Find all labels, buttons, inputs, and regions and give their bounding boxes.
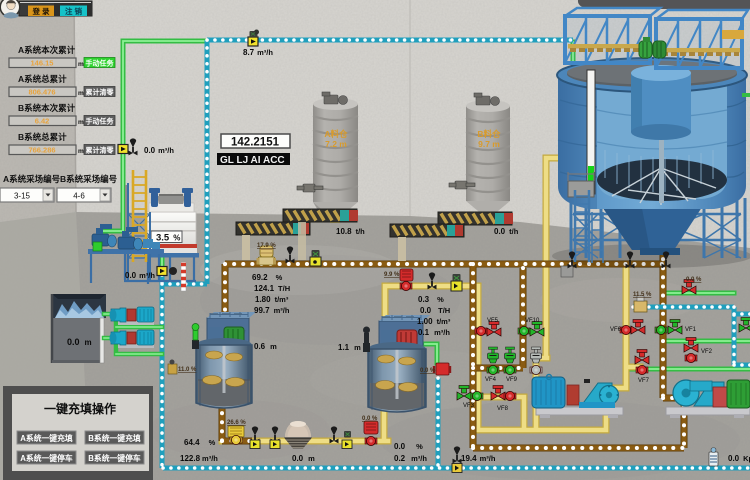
svg-text:A系统一键停车: A系统一键停车: [20, 453, 73, 463]
svg-text:累计清零: 累计清零: [86, 146, 115, 155]
svg-text:VF7: VF7: [638, 378, 650, 384]
svg-text:122.8m³/h: 122.8m³/h: [180, 454, 218, 463]
svg-text:VF1: VF1: [685, 327, 697, 333]
svg-text:4-6: 4-6: [73, 192, 85, 201]
svg-text:VF5: VF5: [487, 318, 499, 324]
svg-text:B系统本次累计: B系统本次累计: [18, 103, 76, 113]
svg-text:VF9: VF9: [506, 377, 518, 383]
svg-text:0.1m³/h: 0.1m³/h: [418, 328, 450, 337]
svg-text:B系统采场编号: B系统采场编号: [60, 174, 118, 184]
svg-text:A系统本次累计: A系统本次累计: [18, 45, 76, 55]
svg-text:B系统一键充填: B系统一键充填: [88, 433, 141, 443]
svg-text:VF8: VF8: [497, 406, 509, 412]
svg-text:0.0m³/h: 0.0m³/h: [125, 271, 155, 280]
svg-text:766.286: 766.286: [28, 146, 55, 155]
svg-text:0.0m³/h: 0.0m³/h: [144, 146, 174, 155]
svg-text:A系统总累计: A系统总累计: [18, 74, 67, 84]
svg-text:806.476: 806.476: [28, 88, 55, 97]
svg-text:9.9 %: 9.9 %: [384, 272, 400, 278]
svg-text:累计清零: 累计清零: [86, 88, 115, 97]
svg-text:A系统一键充填: A系统一键充填: [20, 433, 73, 443]
svg-text:手动任务: 手动任务: [86, 117, 115, 126]
svg-text:0.0Kp: 0.0Kp: [728, 454, 750, 463]
svg-text:VF2: VF2: [701, 349, 713, 355]
svg-text:A料仓: A料仓: [324, 129, 348, 139]
svg-text:0.0m: 0.0m: [67, 337, 92, 347]
svg-text:0.2m³/h: 0.2m³/h: [394, 454, 427, 463]
svg-text:B料仓: B料仓: [477, 129, 501, 139]
svg-text:17.9 %: 17.9 %: [257, 243, 276, 249]
svg-text:11.0 %: 11.0 %: [178, 367, 197, 373]
svg-text:登 录: 登 录: [31, 6, 50, 16]
svg-text:7.2 m: 7.2 m: [325, 139, 347, 149]
svg-text:B系统一键停车: B系统一键停车: [88, 453, 141, 463]
svg-text:146.15: 146.15: [31, 59, 54, 68]
svg-text:GL LJ AI ACC: GL LJ AI ACC: [220, 155, 285, 166]
svg-text:3-15: 3-15: [14, 192, 31, 201]
svg-text:A系统采场编号: A系统采场编号: [3, 174, 61, 184]
svg-text:124.1T/H: 124.1T/H: [254, 284, 290, 293]
svg-text:11.5 %: 11.5 %: [633, 292, 652, 298]
svg-text:0.0 %: 0.0 %: [362, 416, 378, 422]
svg-text:VF10: VF10: [525, 318, 540, 324]
svg-text:0.0 %: 0.0 %: [686, 277, 702, 283]
svg-text:B系统总累计: B系统总累计: [18, 132, 67, 142]
svg-text:注 销: 注 销: [65, 6, 83, 16]
svg-text:9.7 m: 9.7 m: [478, 139, 500, 149]
svg-text:69.2%: 69.2%: [252, 273, 283, 282]
svg-text:VF6: VF6: [610, 327, 622, 333]
svg-text:6.42: 6.42: [35, 117, 50, 126]
svg-text:VF4: VF4: [485, 377, 497, 383]
svg-text:142.2151: 142.2151: [231, 137, 280, 149]
svg-text:26.6 %: 26.6 %: [227, 420, 246, 426]
svg-text:10.8t/h: 10.8t/h: [336, 227, 365, 236]
svg-text:3.5%: 3.5%: [156, 233, 180, 244]
svg-text:8.7m³/h: 8.7m³/h: [243, 48, 273, 57]
svg-text:VF3: VF3: [463, 403, 475, 409]
svg-text:0.0 %: 0.0 %: [420, 368, 436, 374]
svg-text:一键充填操作: 一键充填操作: [44, 401, 116, 416]
svg-text:手动任务: 手动任务: [86, 59, 115, 68]
